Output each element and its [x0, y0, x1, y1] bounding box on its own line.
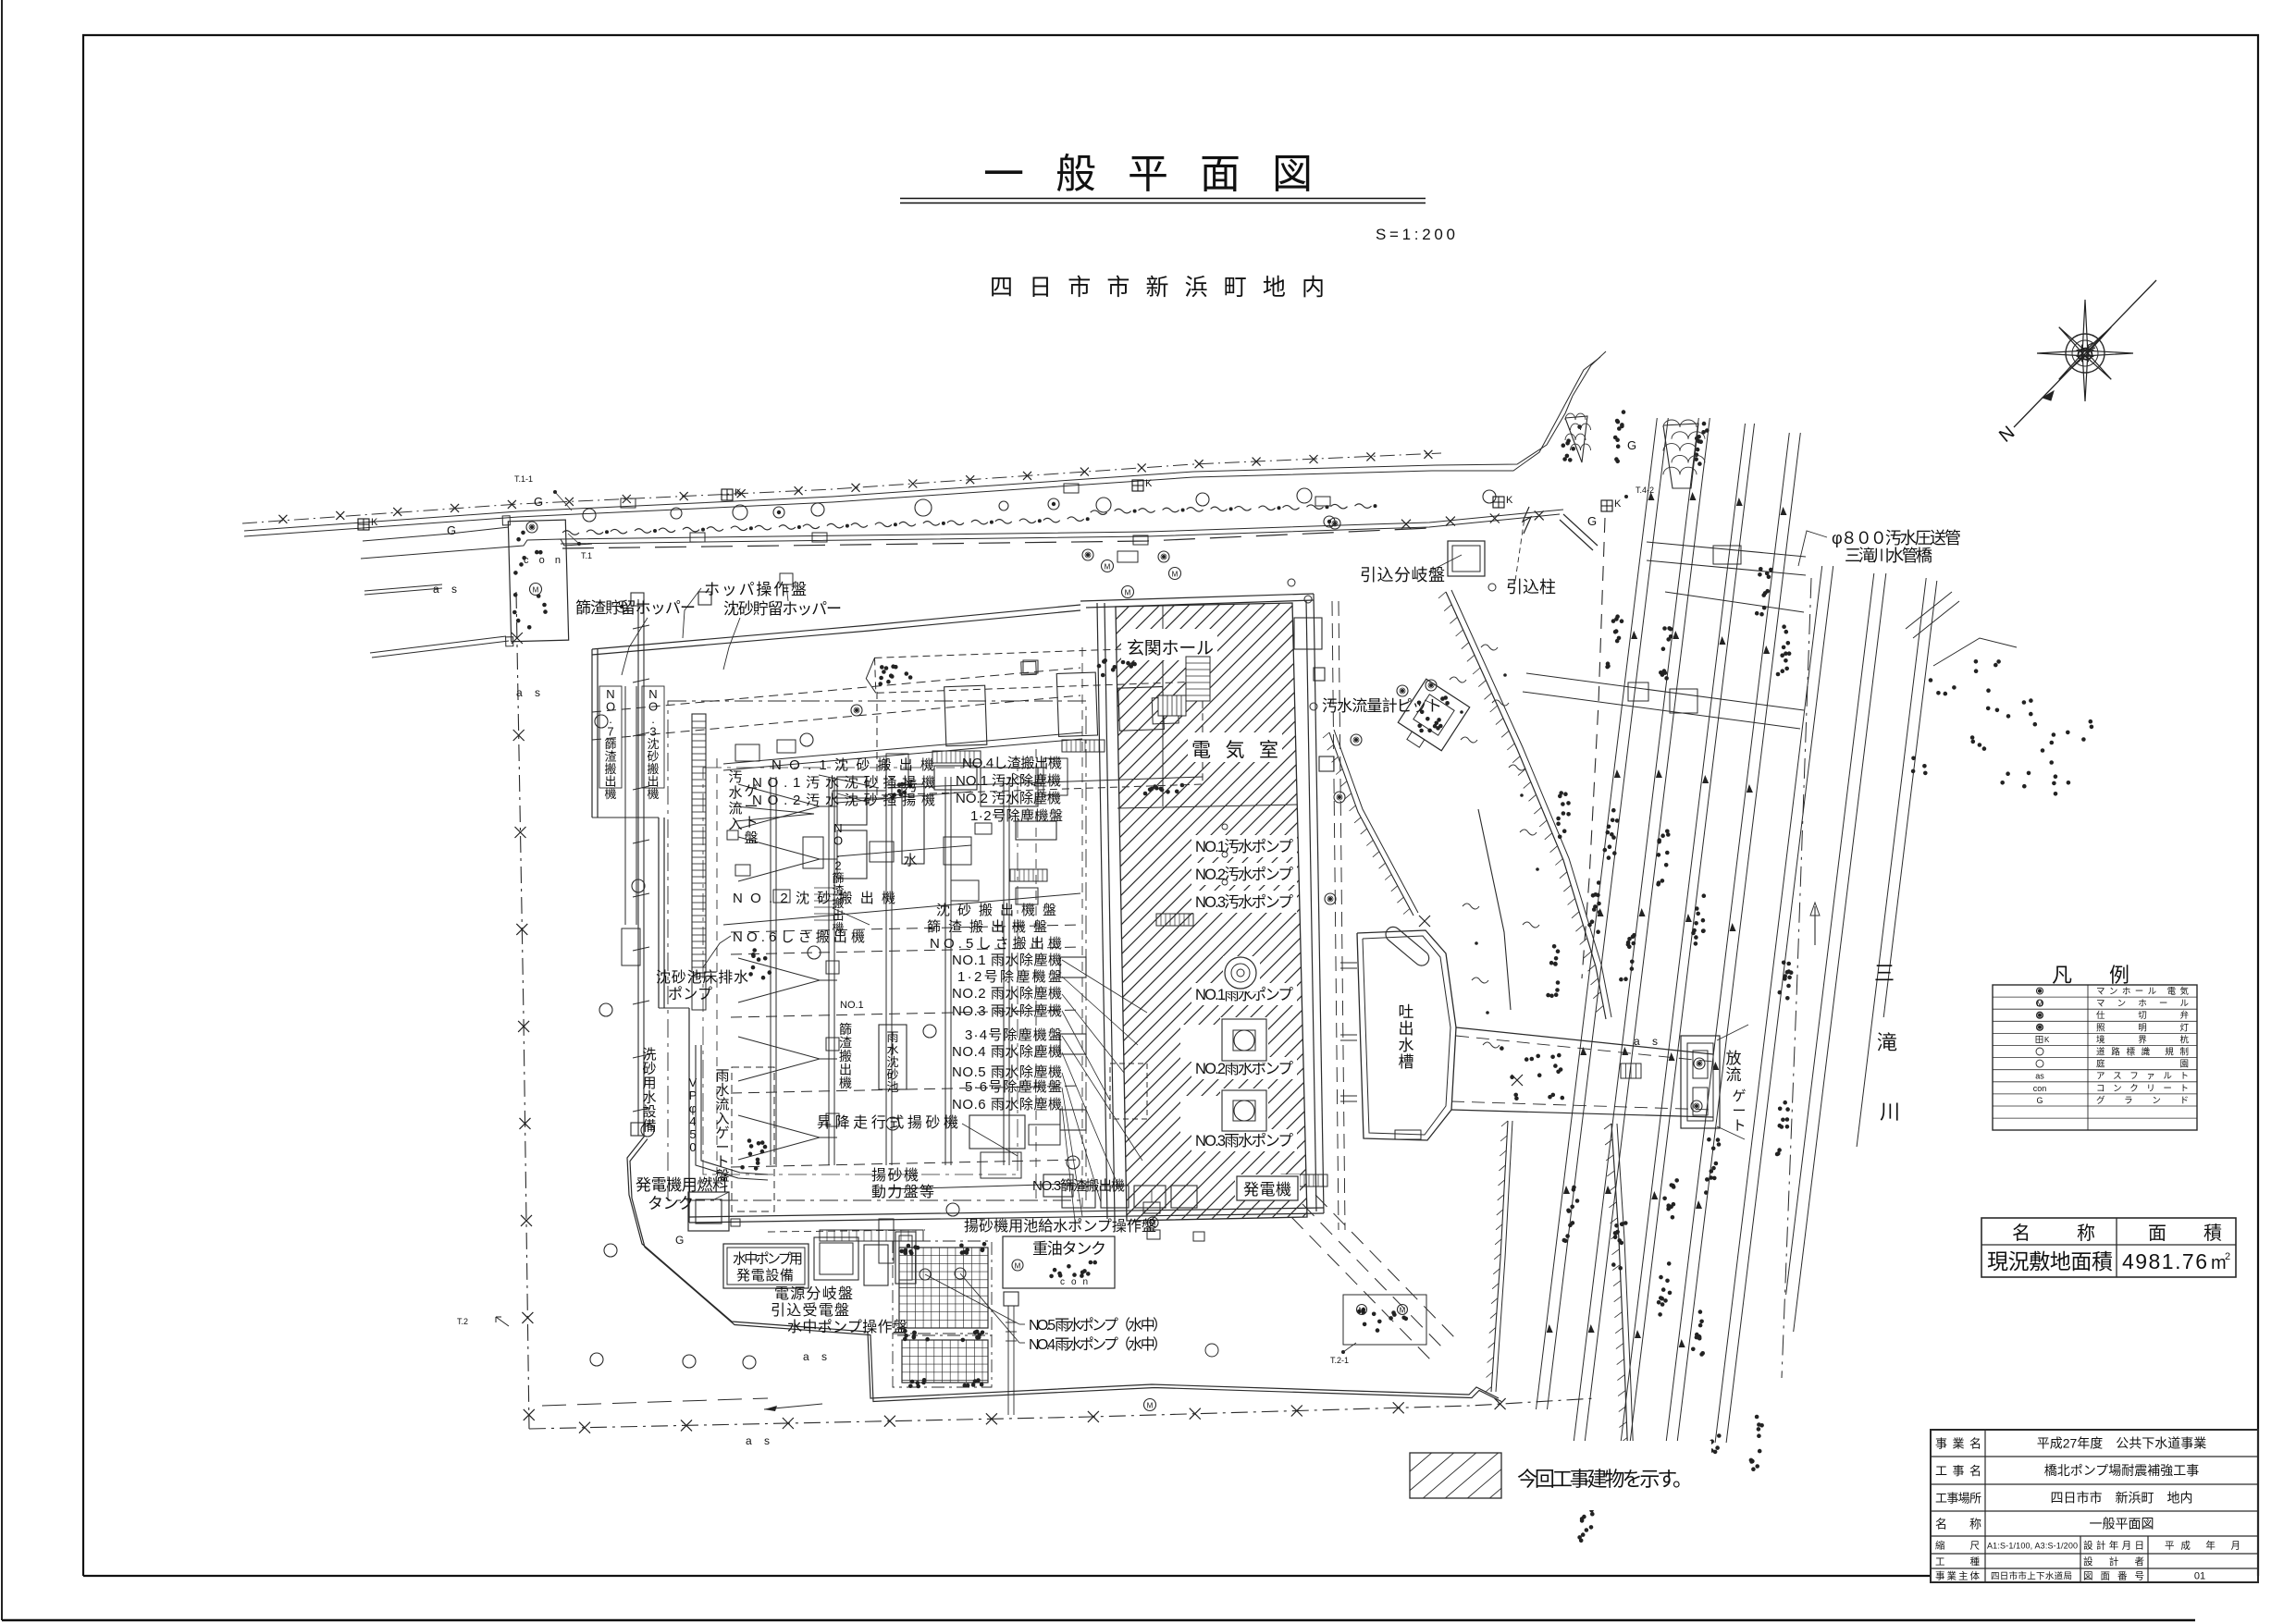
svg-text:NO.4 雨水ポンプ（水中）: NO.4 雨水ポンプ（水中）	[1029, 1336, 1167, 1353]
svg-text:揚砂機: 揚砂機	[871, 1167, 919, 1184]
svg-text:雨: 雨	[715, 1068, 729, 1084]
svg-text:機: 機	[839, 1076, 852, 1090]
svg-text:as: as	[2035, 1072, 2044, 1081]
svg-text:備: 備	[642, 1119, 656, 1135]
svg-text:玄関ホール: 玄関ホール	[1127, 638, 1214, 658]
svg-text:ポンプ: ポンプ	[668, 986, 712, 1002]
svg-text:ゲ: ゲ	[1732, 1088, 1746, 1104]
svg-text:汚: 汚	[728, 769, 742, 785]
svg-text:タンク: タンク	[648, 1195, 694, 1212]
svg-text:機: 機	[647, 787, 659, 801]
svg-text:用: 用	[642, 1076, 656, 1091]
svg-text:入: 入	[728, 817, 742, 832]
svg-text:凡: 凡	[2052, 964, 2072, 987]
svg-text:水: 水	[728, 785, 742, 801]
svg-text:重油タンク: 重油タンク	[1032, 1240, 1106, 1258]
svg-text:M: M	[533, 586, 539, 595]
svg-text:a s: a s	[746, 1434, 770, 1447]
svg-text:T.2: T.2	[457, 1317, 468, 1326]
svg-text:流: 流	[1726, 1066, 1742, 1084]
svg-text:水: 水	[642, 1090, 656, 1106]
svg-text:三滝川水管橋: 三滝川水管橋	[1845, 547, 1932, 565]
svg-text:積: 積	[2203, 1223, 2222, 1244]
svg-text:M: M	[1359, 1307, 1365, 1315]
svg-text:四 日 市 市 新 浜 町 地 内: 四 日 市 市 新 浜 町 地 内	[990, 275, 1325, 301]
svg-text:事業主体: 事業主体	[1935, 1570, 1981, 1582]
svg-text:ト: ト	[744, 815, 758, 830]
svg-text:NO.2 汚水除塵機: NO.2 汚水除塵機	[956, 790, 1061, 806]
svg-text:発電設備: 発電設備	[736, 1268, 794, 1284]
svg-text:G: G	[675, 1234, 684, 1247]
svg-text:工事場所: 工事場所	[1935, 1492, 1981, 1506]
svg-text:M: M	[1400, 1307, 1406, 1315]
svg-text:縮 尺: 縮 尺	[1935, 1540, 1981, 1552]
svg-text:放: 放	[1726, 1050, 1742, 1067]
svg-text:川: 川	[1880, 1100, 1900, 1124]
svg-text:M: M	[1150, 1220, 1156, 1228]
svg-text:沈砂池床排水: 沈砂池床排水	[656, 969, 748, 986]
svg-text:設: 設	[642, 1104, 656, 1120]
svg-text:K: K	[1145, 478, 1153, 489]
svg-text:マンホール 電気: マンホール 電気	[2096, 986, 2189, 997]
svg-text:M: M	[1147, 1402, 1154, 1410]
svg-text:NO.5 雨水ポンプ（水中）: NO.5 雨水ポンプ（水中）	[1029, 1317, 1167, 1334]
svg-text:電源分岐盤: 電源分岐盤	[774, 1285, 853, 1302]
svg-text:G: G	[1587, 514, 1597, 528]
svg-text:汚水流量計ピット: 汚水流量計ピット	[1322, 697, 1442, 715]
svg-text:事 業 名: 事 業 名	[1935, 1437, 1981, 1451]
svg-text:ー: ー	[1732, 1103, 1746, 1119]
svg-text:機: 機	[604, 787, 616, 801]
svg-text:出: 出	[1399, 1020, 1414, 1038]
svg-text:槽: 槽	[1399, 1053, 1414, 1071]
svg-text:称: 称	[2077, 1223, 2095, 1244]
svg-text:四日市市 新浜町 地内: 四日市市 新浜町 地内	[2051, 1491, 2193, 1506]
svg-text:T.1-1: T.1-1	[514, 474, 533, 484]
svg-text:M: M	[1015, 1262, 1021, 1271]
svg-text:NO.1 汚水除塵機: NO.1 汚水除塵機	[956, 772, 1061, 789]
svg-text:現況敷地面積: 現況敷地面積	[1987, 1249, 2113, 1273]
svg-text:流: 流	[728, 801, 742, 817]
svg-text:NO.3雨水ポンプ: NO.3雨水ポンプ	[1195, 1132, 1294, 1150]
svg-text:面: 面	[2148, 1223, 2166, 1244]
svg-text:ゲ: ゲ	[715, 1125, 729, 1141]
svg-text:NO.3 雨水除塵機: NO.3 雨水除塵機	[952, 1002, 1062, 1019]
svg-text:吐: 吐	[1399, 1003, 1414, 1021]
svg-text:四日市市上下水道局: 四日市市上下水道局	[1991, 1571, 2072, 1582]
svg-text:橋北ポンプ場耐震補強工事: 橋北ポンプ場耐震補強工事	[2044, 1463, 2200, 1478]
svg-text:入: 入	[715, 1112, 729, 1127]
svg-text:2: 2	[2225, 1251, 2230, 1262]
svg-text:水: 水	[715, 1083, 729, 1099]
svg-text:三: 三	[1874, 962, 1895, 985]
svg-text:水中ポンプ用: 水中ポンプ用	[733, 1251, 803, 1267]
svg-text:工 種: 工 種	[1935, 1555, 1981, 1568]
svg-text:設計年月日: 設計年月日	[2083, 1540, 2144, 1552]
svg-text:NO.6しさ搬出機: NO.6しさ搬出機	[733, 929, 865, 945]
svg-text:NO.3汚水ポンプ: NO.3汚水ポンプ	[1195, 893, 1294, 911]
svg-text:K: K	[371, 517, 378, 528]
svg-text:NO.5しさ搬出機: NO.5しさ搬出機	[930, 936, 1062, 952]
svg-text:NO.1汚水ポンプ: NO.1汚水ポンプ	[1195, 838, 1294, 855]
svg-text:動力盤等: 動力盤等	[871, 1184, 934, 1200]
svg-text:T.2-1: T.2-1	[1330, 1356, 1349, 1365]
svg-text:M: M	[1172, 571, 1179, 579]
svg-text:流: 流	[715, 1097, 729, 1113]
svg-text:A1:S-1/100, A3:S-1/200: A1:S-1/100, A3:S-1/200	[1987, 1542, 2078, 1551]
svg-text:池: 池	[886, 1080, 898, 1094]
svg-text:引込柱: 引込柱	[1506, 578, 1556, 596]
svg-text:NO.2 雨水除塵機: NO.2 雨水除塵機	[952, 985, 1062, 1002]
svg-text:水: 水	[903, 853, 917, 868]
svg-text:水中ポンプ操作盤: 水中ポンプ操作盤	[787, 1319, 907, 1335]
svg-text:1·2号除塵機盤: 1·2号除塵機盤	[970, 807, 1063, 824]
svg-text:引込受電盤: 引込受電盤	[771, 1302, 849, 1319]
svg-text:K: K	[1614, 498, 1622, 510]
svg-text:盤: 盤	[744, 830, 758, 846]
svg-text:G: G	[534, 495, 543, 509]
svg-text:NO.6 雨水除塵機: NO.6 雨水除塵機	[952, 1096, 1062, 1113]
svg-text:K: K	[2044, 1036, 2050, 1044]
svg-text:発電機用燃料: 発電機用燃料	[636, 1176, 728, 1194]
svg-text:M: M	[1105, 563, 1111, 572]
svg-text:a s: a s	[803, 1350, 827, 1363]
svg-text:設 計 者: 設 計 者	[2083, 1555, 2144, 1568]
svg-text:3·4号除塵機盤: 3·4号除塵機盤	[965, 1027, 1062, 1043]
svg-text:M: M	[1125, 589, 1131, 597]
svg-text:名: 名	[2012, 1223, 2031, 1244]
svg-text:φ８００汚水圧送管: φ８００汚水圧送管	[1832, 529, 1961, 547]
svg-text:洗: 洗	[642, 1047, 656, 1063]
svg-text:K: K	[734, 487, 742, 498]
svg-text:ト: ト	[1732, 1118, 1746, 1134]
svg-text:NO.1 雨水除塵機: NO.1 雨水除塵機	[952, 952, 1062, 968]
svg-text:NO.2汚水ポンプ: NO.2汚水ポンプ	[1195, 866, 1294, 883]
svg-text:G: G	[447, 523, 456, 537]
svg-text:a s: a s	[516, 686, 540, 699]
svg-text:01: 01	[2194, 1571, 2205, 1582]
svg-text:M: M	[2037, 1000, 2043, 1008]
svg-text:NO.4し渣搬出機: NO.4し渣搬出機	[962, 756, 1062, 771]
svg-text:例: 例	[2109, 964, 2129, 987]
svg-text:T.1: T.1	[581, 551, 592, 560]
svg-text:揚砂機用池給水ポンプ操作盤: 揚砂機用池給水ポンプ操作盤	[964, 1218, 1156, 1235]
svg-text:a s: a s	[1634, 1035, 1658, 1048]
svg-text:今回工事建物を示す。: 今回工事建物を示す。	[1517, 1468, 1693, 1491]
svg-text:水: 水	[1399, 1037, 1414, 1054]
svg-text:G: G	[2036, 1096, 2043, 1105]
svg-text:K: K	[1506, 495, 1513, 506]
svg-text:ー: ー	[715, 1140, 729, 1156]
svg-text:a s: a s	[433, 583, 457, 596]
svg-text:NO.5 雨水除塵機: NO.5 雨水除塵機	[952, 1064, 1062, 1080]
svg-text:引込分岐盤: 引込分岐盤	[1360, 566, 1445, 584]
svg-text:滝: 滝	[1877, 1031, 1897, 1054]
svg-text:沈砂貯留ホッパー: 沈砂貯留ホッパー	[723, 600, 842, 618]
svg-text:ホッパ操作盤: ホッパ操作盤	[704, 581, 807, 598]
svg-text:NO.4 雨水除塵機: NO.4 雨水除塵機	[952, 1043, 1062, 1060]
svg-text:名 称: 名 称	[1935, 1518, 1981, 1531]
svg-text:発電機: 発電機	[1243, 1181, 1291, 1199]
svg-text:砂: 砂	[642, 1062, 656, 1077]
svg-text:NO.1: NO.1	[840, 1000, 864, 1011]
svg-text:平成27年度 公共下水道事業: 平成27年度 公共下水道事業	[2037, 1436, 2207, 1451]
svg-text:一般平面図: 一般平面図	[2090, 1517, 2154, 1531]
svg-text:5·6号除塵機盤: 5·6号除塵機盤	[965, 1078, 1062, 1095]
svg-text:工 事 名: 工 事 名	[1935, 1464, 1981, 1478]
svg-text:篩渣貯留ホッパー: 篩渣貯留ホッパー	[575, 599, 696, 617]
svg-text:c o n: c o n	[1060, 1277, 1088, 1287]
svg-text:電 気 室: 電 気 室	[1191, 740, 1278, 761]
svg-text:con: con	[2033, 1084, 2047, 1093]
svg-text:G: G	[1627, 438, 1636, 452]
